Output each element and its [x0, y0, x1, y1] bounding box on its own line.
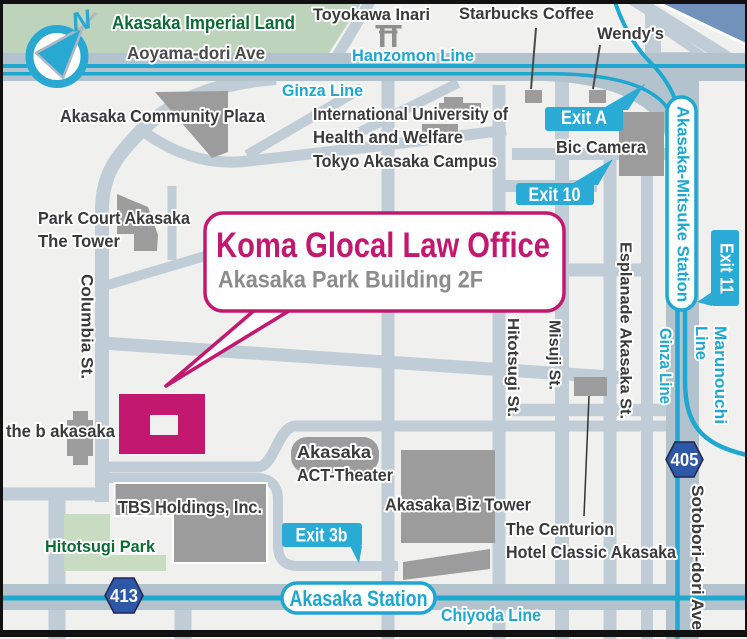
svg-text:Misuji St.: Misuji St. — [546, 320, 563, 390]
svg-text:Akasaka-Mitsuke Station: Akasaka-Mitsuke Station — [674, 106, 693, 302]
svg-text:413: 413 — [110, 585, 138, 606]
svg-text:Toyokawa Inari: Toyokawa Inari — [313, 5, 430, 24]
svg-text:Marunouchi: Marunouchi — [711, 326, 729, 424]
svg-text:ACT-Theater: ACT-Theater — [297, 465, 393, 485]
svg-text:Columbia St.: Columbia St. — [78, 274, 96, 379]
svg-text:Hotel Classic Akasaka: Hotel Classic Akasaka — [506, 542, 676, 562]
svg-text:Tokyo Akasaka Campus: Tokyo Akasaka Campus — [313, 151, 497, 171]
svg-text:Park Court Akasaka: Park Court Akasaka — [38, 208, 190, 228]
svg-text:Line: Line — [692, 326, 710, 360]
svg-text:TBS Holdings, Inc.: TBS Holdings, Inc. — [118, 497, 262, 517]
svg-text:Wendy's: Wendy's — [597, 24, 664, 43]
svg-text:Exit 11: Exit 11 — [717, 243, 737, 294]
svg-text:Ginza Line: Ginza Line — [282, 82, 363, 100]
svg-text:Esplanade Akasaka St.: Esplanade Akasaka St. — [617, 242, 634, 419]
svg-text:Akasaka Imperial Land: Akasaka Imperial Land — [112, 13, 295, 33]
svg-text:the b akasaka: the b akasaka — [6, 421, 115, 441]
svg-text:Akasaka Biz Tower: Akasaka Biz Tower — [385, 495, 531, 515]
svg-text:The Tower: The Tower — [38, 231, 120, 251]
svg-text:Hitotsugi Park: Hitotsugi Park — [45, 538, 156, 556]
svg-text:Akasaka Community Plaza: Akasaka Community Plaza — [60, 106, 265, 126]
svg-text:Akasaka: Akasaka — [297, 442, 371, 462]
svg-text:Bic Camera: Bic Camera — [556, 137, 646, 157]
svg-text:Hitotsugi St.: Hitotsugi St. — [504, 318, 521, 417]
svg-text:Akasaka Park Building 2F: Akasaka Park Building 2F — [218, 267, 483, 294]
svg-text:Aoyama-dori Ave: Aoyama-dori Ave — [127, 43, 265, 63]
svg-text:Exit 3b: Exit 3b — [296, 526, 348, 547]
svg-text:Chiyoda Line: Chiyoda Line — [441, 605, 541, 625]
svg-text:Ginza Line: Ginza Line — [656, 328, 674, 404]
svg-text:Hanzomon Line: Hanzomon Line — [352, 46, 474, 65]
svg-text:Sotobori-dori Ave: Sotobori-dori Ave — [688, 485, 706, 630]
svg-text:Exit A: Exit A — [561, 108, 607, 129]
svg-text:Koma Glocal Law Office: Koma Glocal Law Office — [216, 226, 550, 265]
svg-text:Exit 10: Exit 10 — [529, 185, 581, 206]
svg-text:International University of: International University of — [313, 104, 508, 124]
svg-text:Health and Welfare: Health and Welfare — [313, 127, 463, 147]
svg-text:Akasaka Station: Akasaka Station — [290, 586, 428, 611]
svg-text:Starbucks Coffee: Starbucks Coffee — [459, 4, 594, 23]
svg-text:The Centurion: The Centurion — [506, 519, 614, 539]
svg-text:405: 405 — [671, 449, 699, 470]
